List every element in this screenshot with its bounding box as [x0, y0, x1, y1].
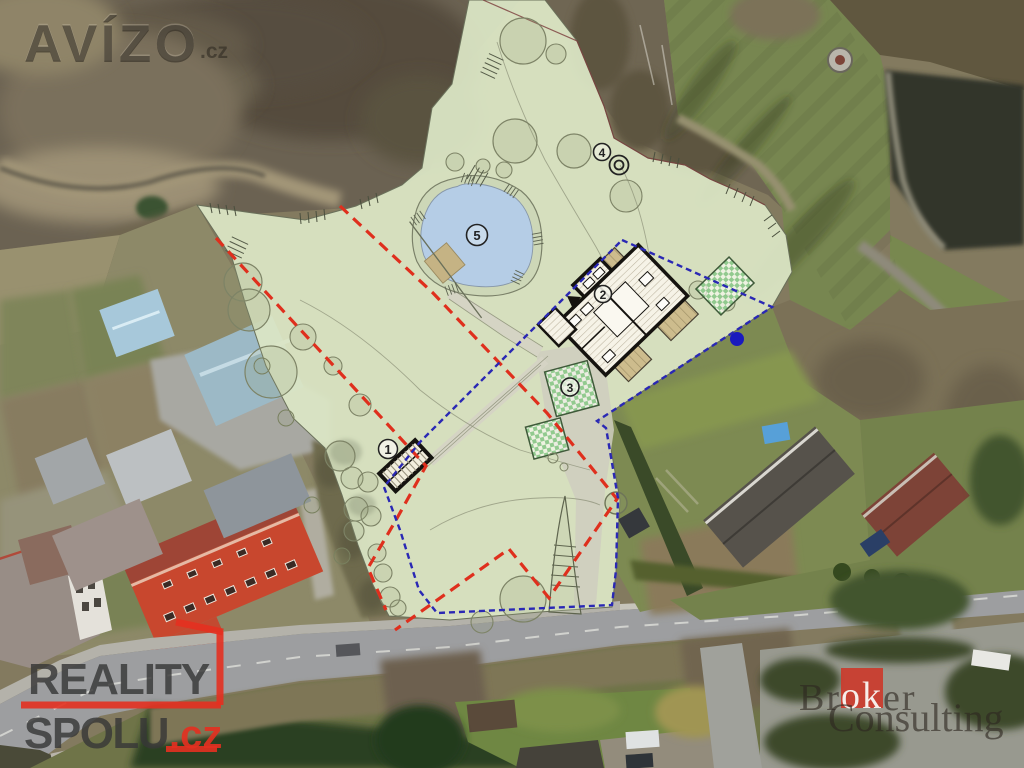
- svg-text:5: 5: [473, 228, 480, 243]
- svg-text:REALITY: REALITY: [28, 655, 210, 704]
- svg-text:SPOLU: SPOLU: [24, 709, 168, 758]
- svg-text:1: 1: [384, 442, 391, 457]
- svg-text:Consulting: Consulting: [828, 695, 1004, 740]
- svg-text:3: 3: [567, 381, 574, 395]
- svg-text:.cz: .cz: [200, 40, 228, 63]
- svg-text:4: 4: [599, 146, 606, 160]
- svg-text:AVÍZO: AVÍZO: [24, 14, 200, 74]
- svg-text:2: 2: [600, 288, 607, 302]
